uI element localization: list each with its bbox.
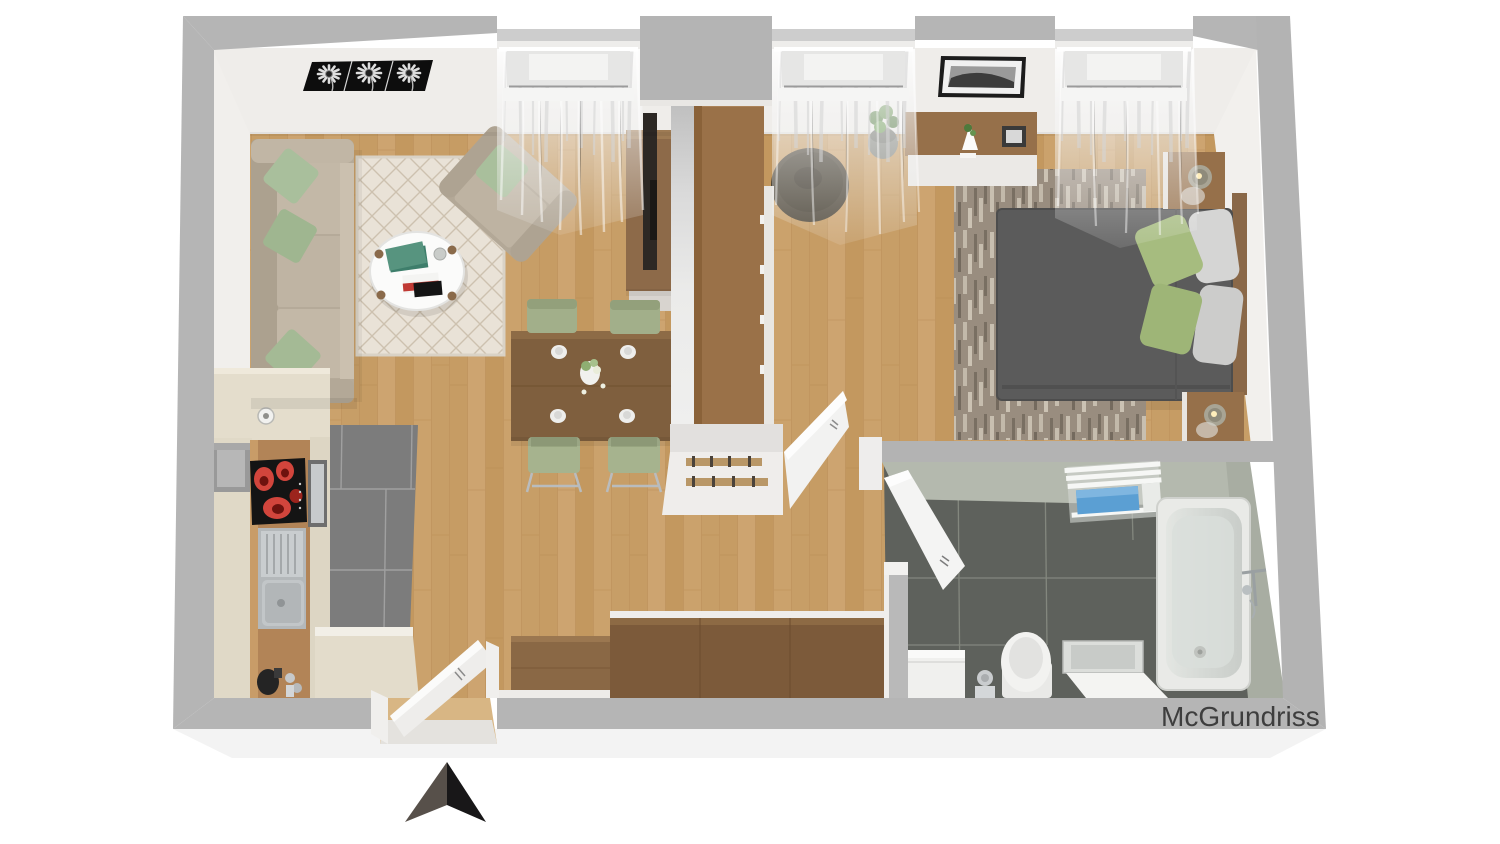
svg-text:McGrundriss: McGrundriss xyxy=(1161,701,1320,732)
